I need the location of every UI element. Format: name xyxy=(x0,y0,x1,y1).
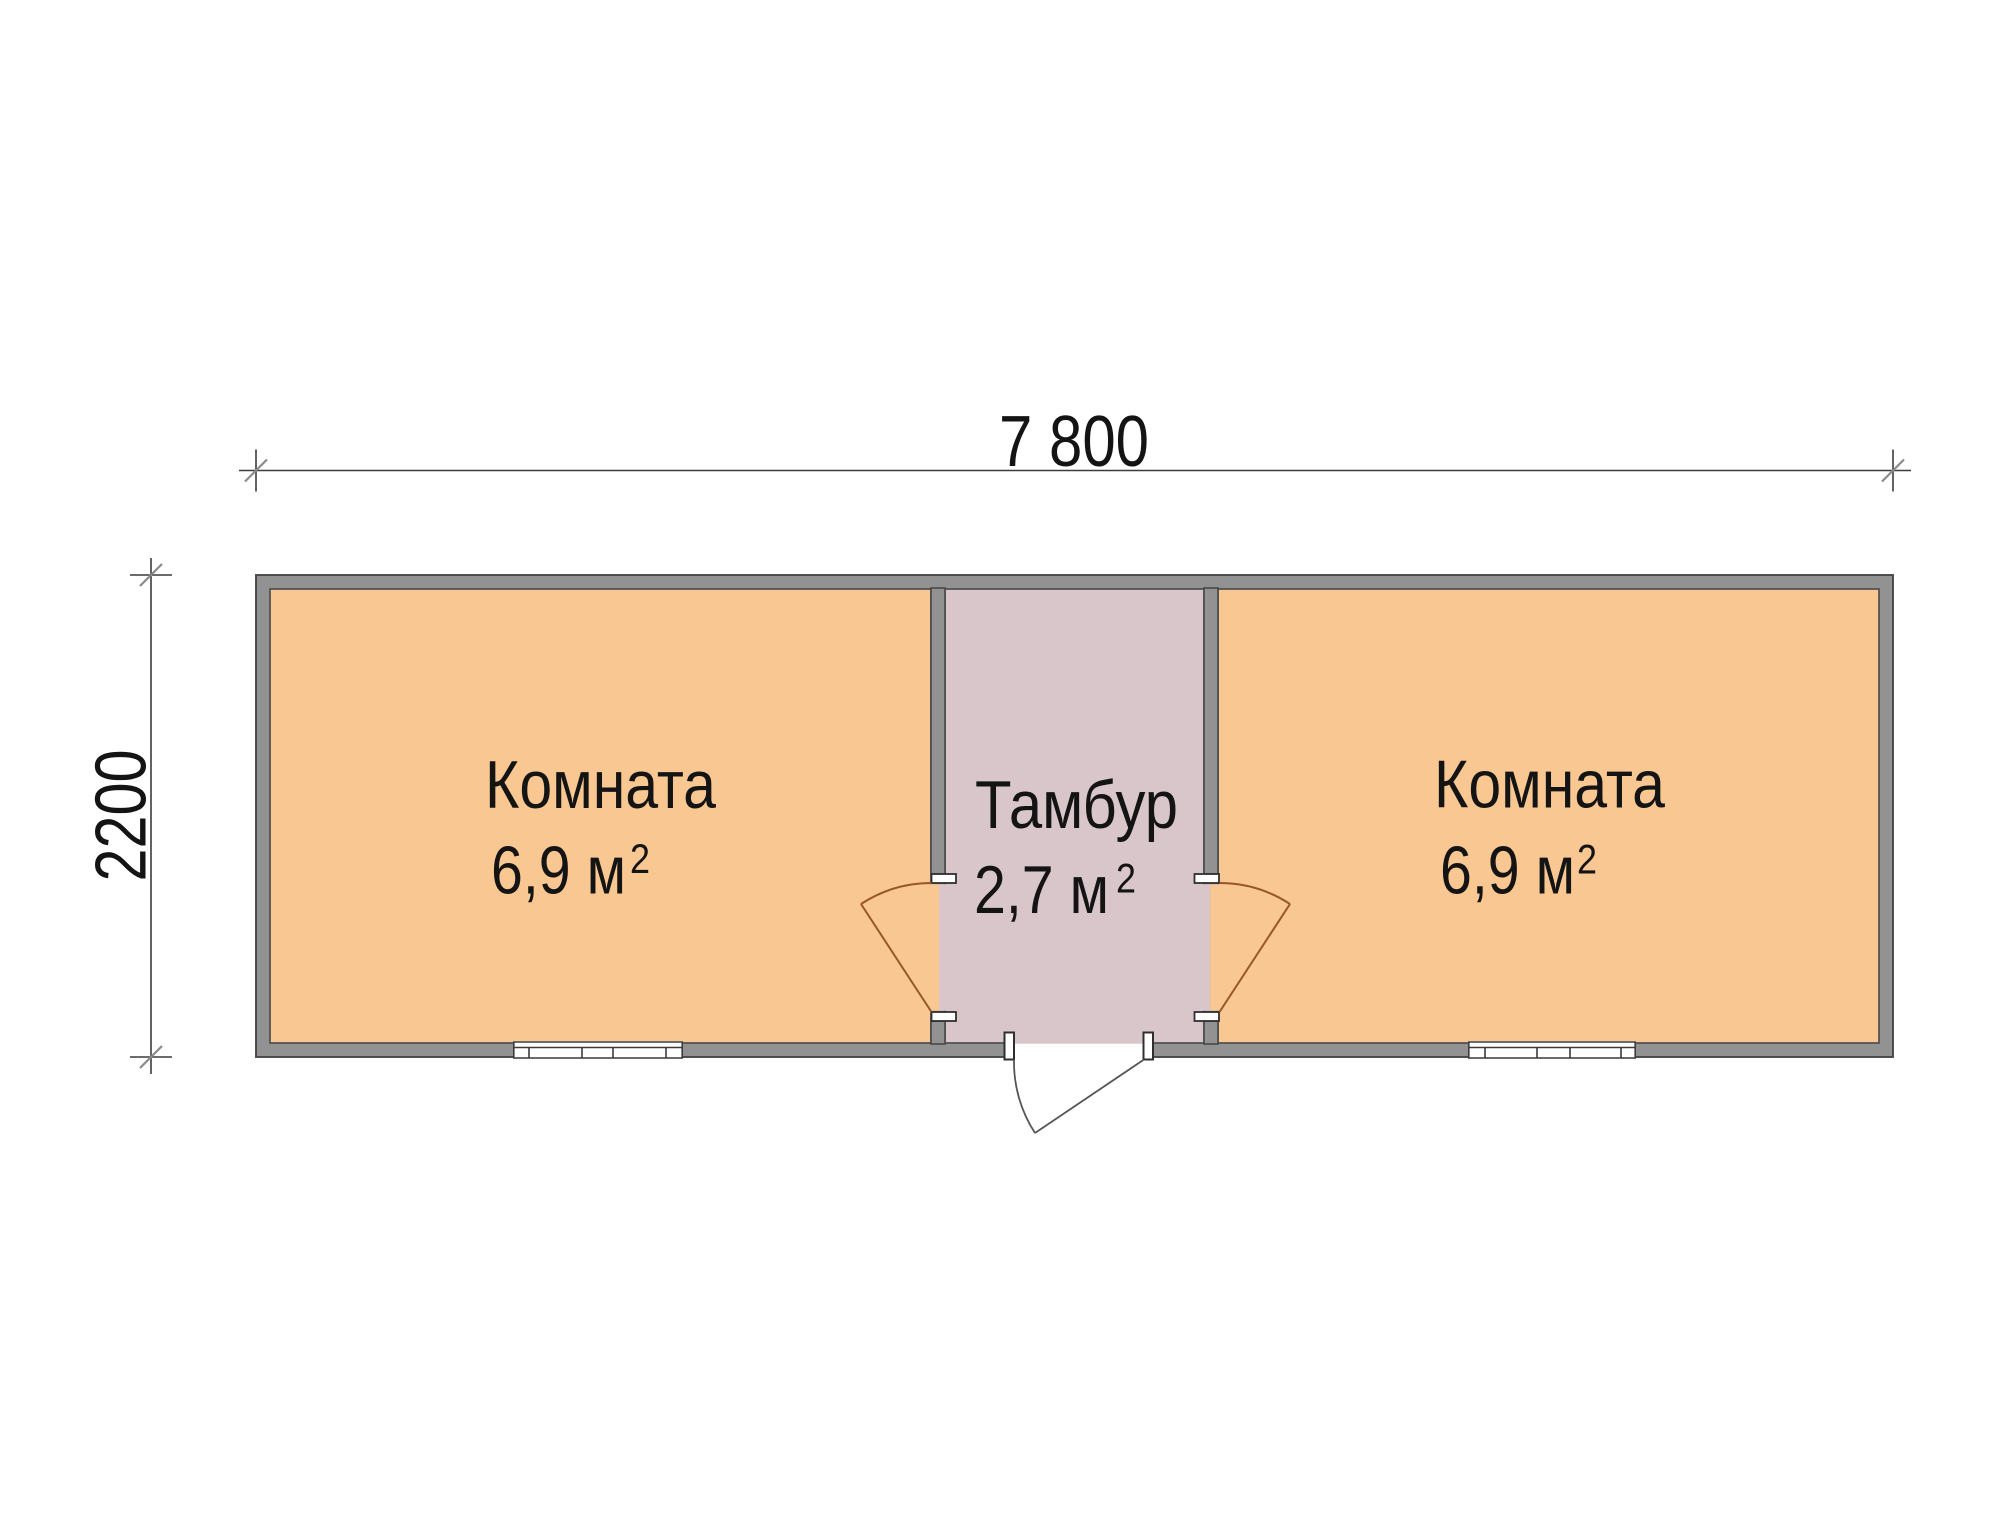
svg-text:2200: 2200 xyxy=(82,750,162,882)
svg-text:Тамбур: Тамбур xyxy=(975,767,1178,843)
svg-text:6,9 м: 6,9 м xyxy=(491,833,626,909)
svg-text:2,7 м: 2,7 м xyxy=(974,852,1109,928)
svg-text:2: 2 xyxy=(1577,836,1597,883)
svg-text:2: 2 xyxy=(1116,855,1136,902)
svg-text:Комната: Комната xyxy=(1434,747,1665,823)
svg-text:6,9 м: 6,9 м xyxy=(1440,833,1575,909)
svg-text:2: 2 xyxy=(630,835,650,882)
svg-text:Комната: Комната xyxy=(485,747,716,823)
svg-text:7 800: 7 800 xyxy=(999,402,1149,482)
